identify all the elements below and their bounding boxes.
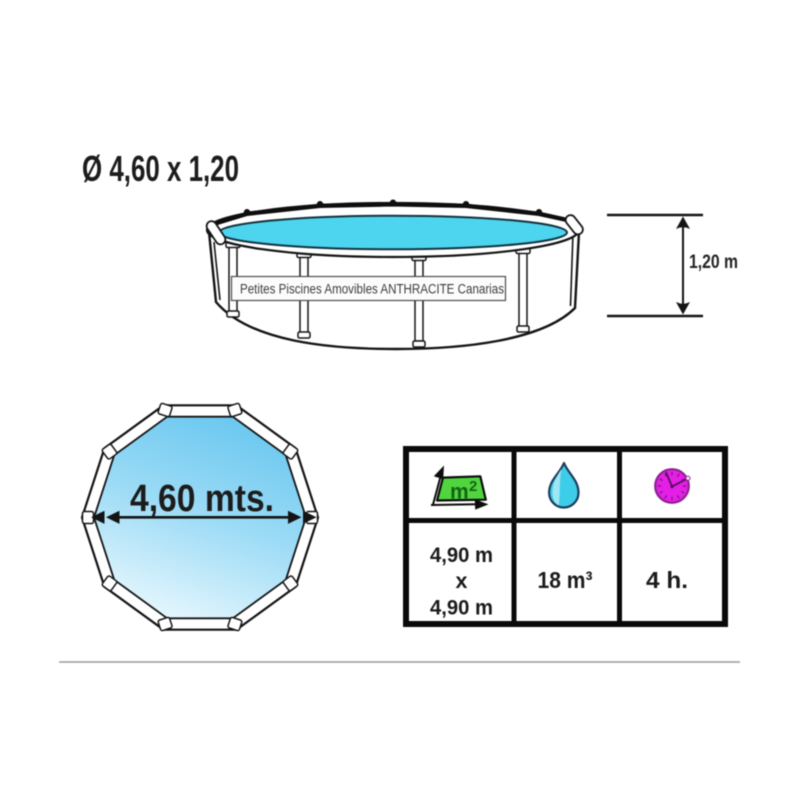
svg-text:m: m xyxy=(450,481,469,504)
svg-text:Ø 4,60 x 1,20: Ø 4,60 x 1,20 xyxy=(82,148,239,189)
svg-text:4 h.: 4 h. xyxy=(646,567,688,593)
svg-text:2: 2 xyxy=(469,478,477,495)
svg-text:4,90 m: 4,90 m xyxy=(430,596,493,620)
svg-text:4,90 m: 4,90 m xyxy=(430,543,493,567)
svg-text:Petites Piscines Amovibles ANT: Petites Piscines Amovibles ANTHRACITE Ca… xyxy=(240,282,504,297)
svg-text:18 m³: 18 m³ xyxy=(538,567,593,593)
svg-text:4,60 mts.: 4,60 mts. xyxy=(130,478,274,520)
svg-text:1,20 m: 1,20 m xyxy=(689,252,738,273)
svg-text:x: x xyxy=(456,569,468,593)
